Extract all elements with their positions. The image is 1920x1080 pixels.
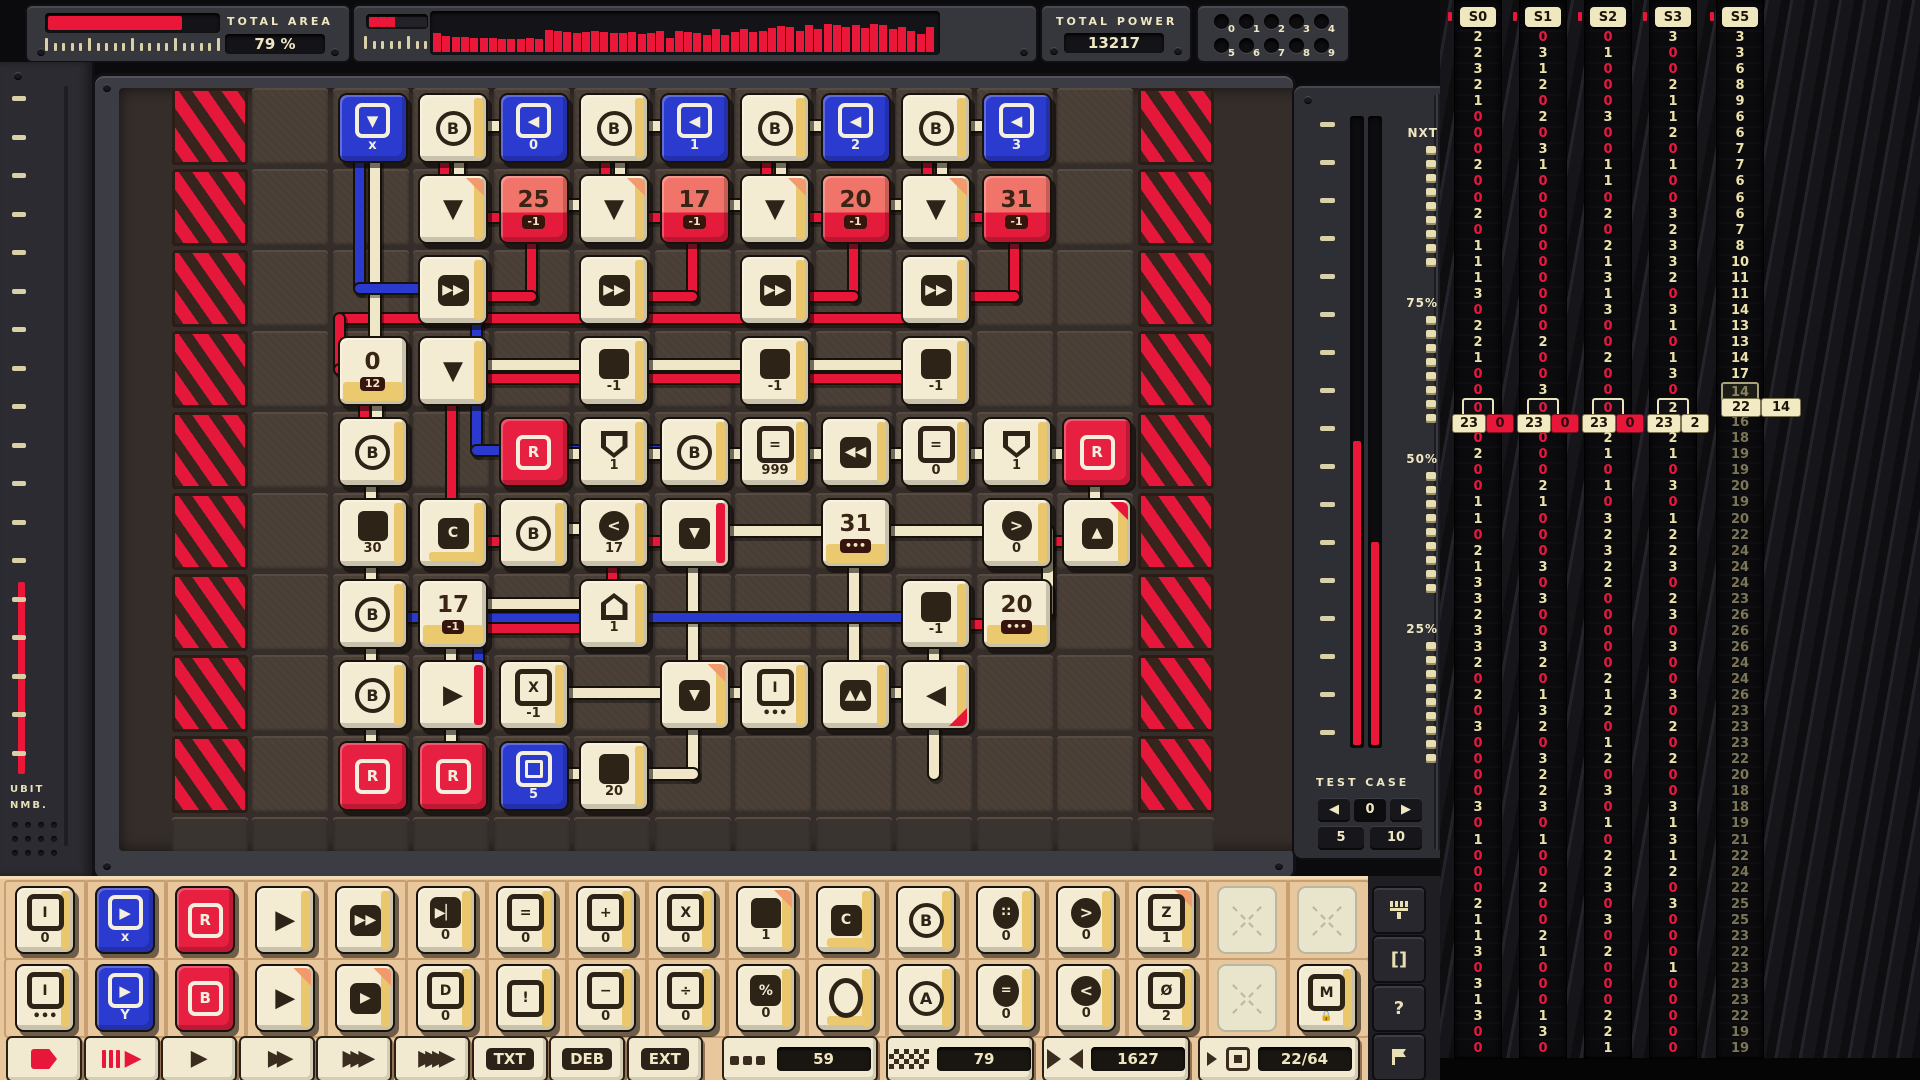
board-cell[interactable] bbox=[252, 574, 328, 651]
histogram-bar bbox=[517, 39, 525, 52]
tile-count-display[interactable]: 59 bbox=[722, 1036, 878, 1080]
tile-x[interactable]: X0 bbox=[656, 886, 716, 954]
stream-value: 2 bbox=[1585, 351, 1631, 367]
stream-value: 2 bbox=[1650, 592, 1696, 608]
histogram-bar bbox=[777, 26, 785, 52]
tile-◀◀[interactable]: ◀◀ bbox=[821, 417, 891, 487]
tile-r[interactable]: R bbox=[418, 741, 488, 811]
palette-cell[interactable]: ▶ bbox=[326, 960, 406, 1036]
board-cell[interactable] bbox=[1057, 736, 1133, 813]
digit-hole[interactable] bbox=[1264, 38, 1279, 53]
palette-cell[interactable]: <0 bbox=[1047, 960, 1127, 1036]
stream-value: 2 bbox=[1455, 447, 1501, 463]
marker-square bbox=[1426, 556, 1436, 565]
stream-value: 2 bbox=[1650, 431, 1696, 447]
tile-▶[interactable]: ▶x bbox=[95, 886, 155, 954]
board-cell[interactable] bbox=[1057, 88, 1133, 165]
stream-value: 23 bbox=[1717, 961, 1763, 977]
hazard-cell bbox=[1138, 331, 1214, 408]
histogram-bar bbox=[703, 35, 711, 52]
slider-tick bbox=[1320, 502, 1335, 507]
stream-value: 23 bbox=[1717, 977, 1763, 993]
hourglass-icon bbox=[1047, 1049, 1083, 1069]
digit-label: 5 bbox=[1228, 48, 1235, 59]
tile-%[interactable]: %0 bbox=[736, 964, 796, 1032]
stream-value: 1 bbox=[1520, 945, 1566, 961]
stream-value: 0 bbox=[1455, 1041, 1501, 1057]
tile-r[interactable]: R bbox=[1062, 417, 1132, 487]
ext-button[interactable]: EXT bbox=[627, 1036, 703, 1080]
stream-value: 0 bbox=[1585, 142, 1631, 158]
board-cell[interactable] bbox=[735, 736, 811, 813]
palette-cell[interactable]: B bbox=[887, 882, 967, 958]
tile-wbox-tridown[interactable]: ▼x bbox=[338, 93, 408, 163]
stream-value: 0 bbox=[1650, 881, 1696, 897]
tile-▲[interactable]: ▲ bbox=[1062, 498, 1132, 568]
boxed-=-icon: = bbox=[918, 426, 955, 463]
dot-grid-dot bbox=[51, 836, 57, 842]
tile-÷[interactable]: ÷0 bbox=[656, 964, 716, 1032]
board-cell[interactable] bbox=[252, 493, 328, 570]
square-icon bbox=[751, 898, 781, 928]
tile-i[interactable]: I••• bbox=[15, 964, 75, 1032]
palette-cell[interactable]: Ø2 bbox=[1127, 960, 1207, 1036]
flag-button[interactable] bbox=[1372, 1033, 1426, 1080]
stream-value: 11 bbox=[1717, 271, 1763, 287]
tile-d[interactable]: D0 bbox=[416, 964, 476, 1032]
input-left-icon: ◀ bbox=[516, 103, 551, 138]
board-cell[interactable] bbox=[252, 88, 328, 165]
marker-square bbox=[1426, 216, 1436, 225]
palette-cell[interactable]: ▶ bbox=[246, 960, 326, 1036]
stream-value: 1 bbox=[1650, 351, 1696, 367]
tile-sq[interactable]: 20 bbox=[579, 741, 649, 811]
boxed-=-icon: = bbox=[507, 894, 544, 931]
stream-value: 24 bbox=[1717, 865, 1763, 881]
tile-c[interactable]: C bbox=[816, 886, 876, 954]
run-button[interactable]: ▶ bbox=[161, 1036, 237, 1080]
tile-b[interactable]: B bbox=[579, 93, 649, 163]
tile-▼[interactable]: ▼ bbox=[660, 498, 730, 568]
tile-x[interactable]: X-1 bbox=[499, 660, 569, 730]
marker-square bbox=[1426, 542, 1436, 551]
tile-=[interactable]: =0 bbox=[496, 886, 556, 954]
tile-=[interactable]: =999 bbox=[740, 417, 810, 487]
tile-sq[interactable]: -1 bbox=[901, 336, 971, 406]
txt-button[interactable]: TXT bbox=[472, 1036, 548, 1080]
tile-▶[interactable]: ▶ bbox=[335, 964, 395, 1032]
tile-r[interactable]: R bbox=[499, 417, 569, 487]
palette-cell[interactable] bbox=[1208, 960, 1288, 1036]
stream-value: 0 bbox=[1455, 431, 1501, 447]
palette-cell[interactable]: 1 bbox=[727, 882, 807, 958]
tile-tri-down[interactable]: ▼ bbox=[901, 174, 971, 244]
board-cell[interactable] bbox=[1057, 331, 1133, 408]
tile-![interactable]: ! bbox=[496, 964, 556, 1032]
hazard-cell bbox=[172, 331, 248, 408]
tile-label: 17 bbox=[605, 541, 623, 556]
tile-r[interactable]: R bbox=[175, 886, 235, 954]
stream-value: 0 bbox=[1650, 736, 1696, 752]
dot-grid-dot bbox=[25, 822, 31, 828]
digit-hole[interactable] bbox=[1264, 14, 1279, 29]
empty-slot[interactable] bbox=[1217, 886, 1277, 954]
tile-sq[interactable]: 30 bbox=[338, 498, 408, 568]
tile-label: -1 bbox=[768, 379, 782, 394]
stream-value: 3 bbox=[1585, 784, 1631, 800]
tile-sqsq[interactable]: 5 bbox=[499, 741, 569, 811]
stream-value: 0 bbox=[1585, 383, 1631, 399]
tile-▶▶[interactable]: ▶▶ bbox=[579, 255, 649, 325]
stream-value: 2 bbox=[1585, 672, 1631, 688]
stream-value: 9 bbox=[1717, 94, 1763, 110]
palette-cell[interactable]: ÷0 bbox=[647, 960, 727, 1036]
histogram-bar bbox=[433, 33, 441, 52]
stream-value: 3 bbox=[1455, 592, 1501, 608]
slider-tick bbox=[1320, 160, 1335, 165]
tile-17[interactable]: 17-1 bbox=[660, 174, 730, 244]
tile-25[interactable]: 25-1 bbox=[499, 174, 569, 244]
palette-cell[interactable]: +0 bbox=[567, 882, 647, 958]
tile-+[interactable]: +0 bbox=[576, 886, 636, 954]
stream-value: 1 bbox=[1650, 816, 1696, 832]
tile-b[interactable]: B bbox=[338, 579, 408, 649]
tile-b[interactable]: B bbox=[338, 660, 408, 730]
stream-value: 0 bbox=[1520, 447, 1566, 463]
marker-label-50: 50% bbox=[1406, 452, 1438, 466]
faster-button[interactable]: ▶▶▶ bbox=[316, 1036, 392, 1080]
io-streams-panel: S022321000200201113022100023002001102133… bbox=[1440, 0, 1920, 1080]
tile-tri-left[interactable]: ◀ bbox=[901, 660, 971, 730]
board-cell[interactable] bbox=[1057, 574, 1133, 651]
dot-grid-dot bbox=[12, 850, 18, 856]
tile-▲▲[interactable]: ▲▲ bbox=[821, 660, 891, 730]
palette-cell[interactable]: =0 bbox=[487, 882, 567, 958]
palette-cell[interactable]: =0 bbox=[967, 960, 1047, 1036]
tile-b[interactable]: B bbox=[175, 964, 235, 1032]
stream-value: 0 bbox=[1520, 463, 1566, 479]
test-case-prev-button[interactable]: ◀ bbox=[1318, 798, 1350, 820]
digit-hole[interactable] bbox=[1214, 38, 1229, 53]
stream-value: 0 bbox=[1650, 784, 1696, 800]
letter-B-icon: B bbox=[909, 903, 944, 938]
triangle-down-icon: ▼ bbox=[443, 194, 463, 224]
palette-cell[interactable]: X0 bbox=[647, 882, 727, 958]
stream-value: 1 bbox=[1455, 495, 1501, 511]
play-icon: ▶ bbox=[191, 1049, 208, 1069]
tile-∷[interactable]: ∷0 bbox=[976, 886, 1036, 954]
tile-tri-down[interactable]: ▼ bbox=[418, 336, 488, 406]
digit-hole[interactable] bbox=[1239, 38, 1254, 53]
board-cell[interactable] bbox=[252, 250, 328, 327]
stream-value: 3 bbox=[1455, 1009, 1501, 1025]
histogram-bar bbox=[833, 25, 841, 52]
tile-badge: ••• bbox=[840, 539, 871, 553]
stream-value: 3 bbox=[1455, 977, 1501, 993]
tile-17[interactable]: 17-1 bbox=[418, 579, 488, 649]
hazard-cell bbox=[172, 250, 248, 327]
palette-cell[interactable] bbox=[1208, 882, 1288, 958]
slider-tick bbox=[1320, 464, 1335, 469]
tile-i[interactable]: I••• bbox=[740, 660, 810, 730]
test-case-preset-5[interactable]: 5 bbox=[1318, 826, 1364, 848]
left-tick bbox=[12, 404, 26, 409]
palette-cell[interactable]: A bbox=[887, 960, 967, 1036]
stream-value: 0 bbox=[1650, 704, 1696, 720]
tile-sq[interactable]: -1 bbox=[740, 336, 810, 406]
digit-hole[interactable] bbox=[1289, 14, 1304, 29]
stream-value: 2 bbox=[1650, 78, 1696, 94]
tile-−[interactable]: −0 bbox=[576, 964, 636, 1032]
deb-button[interactable]: DEB bbox=[549, 1036, 625, 1080]
stream-value: 3 bbox=[1520, 752, 1566, 768]
tile-▶▶[interactable]: ▶▶ bbox=[335, 886, 395, 954]
digit-hole[interactable] bbox=[1214, 14, 1229, 29]
tile-b[interactable]: B bbox=[901, 93, 971, 163]
brush-button[interactable] bbox=[1372, 886, 1426, 934]
tile-tri-right[interactable]: ▶ bbox=[255, 886, 315, 954]
stop-button[interactable] bbox=[6, 1036, 82, 1080]
tile-shield[interactable]: 1 bbox=[579, 417, 649, 487]
stream-value: 2 bbox=[1455, 46, 1501, 62]
tile-ø[interactable]: Ø2 bbox=[1136, 964, 1196, 1032]
digit-hole[interactable] bbox=[1289, 38, 1304, 53]
tile-31[interactable]: 31••• bbox=[821, 498, 891, 568]
tile-▶[interactable]: ▶Y bbox=[95, 964, 155, 1032]
tile-=[interactable]: =0 bbox=[901, 417, 971, 487]
tile-r[interactable]: R bbox=[338, 741, 408, 811]
tile-b[interactable]: B bbox=[418, 93, 488, 163]
board-cell[interactable] bbox=[977, 655, 1053, 732]
marker-square bbox=[1426, 330, 1436, 339]
board-cell[interactable] bbox=[1057, 655, 1133, 732]
slider-tick bbox=[1320, 654, 1335, 659]
tile-▼[interactable]: ▼ bbox=[660, 660, 730, 730]
tile-z[interactable]: Z1 bbox=[1136, 886, 1196, 954]
palette-cell[interactable]: B bbox=[166, 960, 246, 1036]
test-case-preset-10[interactable]: 10 bbox=[1370, 826, 1422, 848]
tile-label: 5 bbox=[529, 787, 538, 802]
digit-hole[interactable] bbox=[1314, 38, 1329, 53]
marker-square bbox=[1426, 656, 1436, 665]
test-case-label: TEST CASE bbox=[1316, 776, 1409, 789]
tile-=[interactable]: =0 bbox=[976, 964, 1036, 1032]
histogram-bar bbox=[666, 38, 674, 52]
tile-b[interactable]: B bbox=[338, 417, 408, 487]
area-count-display[interactable]: 79 bbox=[886, 1036, 1034, 1080]
palette-cell[interactable]: R bbox=[166, 882, 246, 958]
board-edge-cell bbox=[252, 817, 328, 851]
stream-value: 0 bbox=[1650, 46, 1696, 62]
tile-wbox-trileft[interactable]: ◀0 bbox=[499, 93, 569, 163]
palette-cell[interactable]: ▶ bbox=[246, 882, 326, 958]
frame-count-display[interactable]: 22/64 bbox=[1198, 1036, 1360, 1080]
tile-31[interactable]: 31-1 bbox=[982, 174, 1052, 244]
fast-forward-icon: ▶▶ bbox=[268, 1049, 286, 1069]
help-button[interactable]: ? bbox=[1372, 984, 1426, 1032]
side-buttons: []? bbox=[1368, 876, 1440, 1080]
step-button[interactable]: ▶ bbox=[84, 1036, 160, 1080]
tile-tri-down[interactable]: ▼ bbox=[740, 174, 810, 244]
cycle-count-display[interactable]: 1627 bbox=[1042, 1036, 1190, 1080]
palette-cell[interactable]: ▶x bbox=[86, 882, 166, 958]
empty-slot[interactable] bbox=[1217, 964, 1277, 1032]
tile-20[interactable]: 20-1 bbox=[821, 174, 891, 244]
slider-tick bbox=[1320, 616, 1335, 621]
palette-cell[interactable] bbox=[1288, 882, 1368, 958]
stream-value: 3 bbox=[1650, 30, 1696, 46]
tile-tri-right[interactable]: ▶ bbox=[418, 660, 488, 730]
board-cell[interactable] bbox=[1057, 250, 1133, 327]
tile-home[interactable]: 1 bbox=[579, 579, 649, 649]
ruler-tick bbox=[424, 41, 427, 49]
stream-value: 3 bbox=[1585, 544, 1631, 560]
dark-boxed-icon: ◀◀ bbox=[840, 437, 871, 468]
palette-cell[interactable]: Z1 bbox=[1127, 882, 1207, 958]
tile-m[interactable]: M🔒 bbox=[1297, 964, 1357, 1032]
tile-i[interactable]: I0 bbox=[15, 886, 75, 954]
board-cell[interactable] bbox=[977, 736, 1053, 813]
tile-wbox-trileft[interactable]: ◀2 bbox=[821, 93, 891, 163]
board-cell[interactable] bbox=[252, 736, 328, 813]
tile-tri-down[interactable]: ▼ bbox=[579, 174, 649, 244]
tile-b[interactable]: B bbox=[660, 417, 730, 487]
ruler-tick bbox=[200, 43, 203, 51]
tile-b[interactable]: B bbox=[499, 498, 569, 568]
triangle-right-icon: ▶ bbox=[443, 680, 463, 710]
boxed-=-icon: = bbox=[757, 426, 794, 463]
marker-square bbox=[1426, 244, 1436, 253]
palette-cell[interactable] bbox=[807, 960, 887, 1036]
board-cell[interactable] bbox=[252, 169, 328, 246]
stream-value: 0 bbox=[1455, 528, 1501, 544]
stream-value: 0 bbox=[1650, 142, 1696, 158]
board-cell[interactable] bbox=[816, 736, 892, 813]
stream-value: 0 bbox=[1520, 624, 1566, 640]
tile-▶▶[interactable]: ▶▶ bbox=[740, 255, 810, 325]
tile-tri-down[interactable]: ▼ bbox=[418, 174, 488, 244]
palette-cell[interactable]: I0 bbox=[6, 882, 86, 958]
stream-value: 0 bbox=[1585, 78, 1631, 94]
histogram-bar bbox=[870, 24, 878, 52]
palette-cell[interactable]: −0 bbox=[567, 960, 647, 1036]
tile-▶▶[interactable]: ▶▶ bbox=[901, 255, 971, 325]
palette-cell[interactable]: %0 bbox=[727, 960, 807, 1036]
palette-cell[interactable]: ! bbox=[487, 960, 567, 1036]
palette-cell[interactable]: >0 bbox=[1047, 882, 1127, 958]
histogram-bar bbox=[861, 28, 869, 52]
histogram-bar bbox=[805, 25, 813, 52]
stream-value: 24 bbox=[1717, 672, 1763, 688]
test-case-next-button[interactable]: ▶ bbox=[1390, 798, 1422, 820]
fast-button[interactable]: ▶▶ bbox=[239, 1036, 315, 1080]
tile-wbox-trileft[interactable]: ◀1 bbox=[660, 93, 730, 163]
tile-▶▏[interactable]: ▶▏0 bbox=[416, 886, 476, 954]
histogram-bar bbox=[489, 38, 497, 52]
empty-slot[interactable] bbox=[1297, 886, 1357, 954]
stream-value: 1 bbox=[1520, 1009, 1566, 1025]
tile-20[interactable]: 20••• bbox=[982, 579, 1052, 649]
board-cell[interactable] bbox=[1057, 169, 1133, 246]
board-cell[interactable] bbox=[977, 331, 1053, 408]
stream-value: 0 bbox=[1520, 913, 1566, 929]
palette-cell[interactable]: ▶▏0 bbox=[407, 882, 487, 958]
stream-value: 1 bbox=[1585, 287, 1631, 303]
tile-<[interactable]: <0 bbox=[1056, 964, 1116, 1032]
hazard-cell bbox=[1138, 574, 1214, 651]
board-cell[interactable] bbox=[252, 412, 328, 489]
tile-▶▶[interactable]: ▶▶ bbox=[418, 255, 488, 325]
tile->[interactable]: >0 bbox=[982, 498, 1052, 568]
tile-shield[interactable]: 1 bbox=[982, 417, 1052, 487]
board-cell[interactable] bbox=[252, 655, 328, 732]
stream-value: 23 bbox=[1717, 720, 1763, 736]
digit-hole[interactable] bbox=[1239, 14, 1254, 29]
histogram-bar bbox=[759, 31, 767, 52]
palette-cell[interactable]: ▶Y bbox=[86, 960, 166, 1036]
total-area-label: TOTAL AREA bbox=[227, 15, 333, 28]
tile-0[interactable]: 012 bbox=[338, 336, 408, 406]
stream-value: 1 bbox=[1455, 560, 1501, 576]
stream-value: 0 bbox=[1520, 544, 1566, 560]
palette-cell[interactable]: ∷0 bbox=[967, 882, 1047, 958]
fastest-button[interactable]: ▶▶▶▶ bbox=[394, 1036, 470, 1080]
palette-cell[interactable]: ▶▶ bbox=[326, 882, 406, 958]
marker-square bbox=[1426, 344, 1436, 353]
tile-oval[interactable] bbox=[816, 964, 876, 1032]
tile-sq[interactable]: 1 bbox=[736, 886, 796, 954]
stream-value: 3 bbox=[1585, 303, 1631, 319]
tile-a[interactable]: A bbox=[896, 964, 956, 1032]
stream-value: 1 bbox=[1455, 271, 1501, 287]
tile-wbox-trileft[interactable]: ◀3 bbox=[982, 93, 1052, 163]
red-wire bbox=[447, 374, 939, 383]
tile-label: 0 bbox=[521, 931, 530, 946]
stream-value: 1 bbox=[1520, 158, 1566, 174]
tile-sq[interactable]: -1 bbox=[579, 336, 649, 406]
tile->[interactable]: >0 bbox=[1056, 886, 1116, 954]
palette-cell[interactable]: I••• bbox=[6, 960, 86, 1036]
tile-<[interactable]: <17 bbox=[579, 498, 649, 568]
stream-value: 3 bbox=[1650, 367, 1696, 383]
tile-sq[interactable]: -1 bbox=[901, 579, 971, 649]
board-cell[interactable] bbox=[252, 331, 328, 408]
tile-tri-right[interactable]: ▶ bbox=[255, 964, 315, 1032]
stream-value: 0 bbox=[1585, 592, 1631, 608]
digit-label: 6 bbox=[1253, 48, 1260, 59]
ubit-label-line2: NMB. bbox=[10, 800, 48, 811]
stream-value: 6 bbox=[1717, 110, 1763, 126]
palette-cell[interactable]: C bbox=[807, 882, 887, 958]
digit-hole[interactable] bbox=[1314, 14, 1329, 29]
tile-b[interactable]: B bbox=[740, 93, 810, 163]
left-tick bbox=[12, 135, 26, 140]
tile-c[interactable]: C bbox=[418, 498, 488, 568]
ruler-tick bbox=[71, 43, 74, 51]
brackets-button[interactable]: [] bbox=[1372, 935, 1426, 983]
tile-b[interactable]: B bbox=[896, 886, 956, 954]
marker-square bbox=[1426, 472, 1436, 481]
palette-cell[interactable]: M🔒 bbox=[1288, 960, 1368, 1036]
stream-value: 11 bbox=[1717, 287, 1763, 303]
histogram-bar bbox=[907, 31, 915, 52]
letter-B-icon: B bbox=[758, 111, 793, 146]
stream-value: 0 bbox=[1650, 287, 1696, 303]
palette-cell[interactable]: D0 bbox=[407, 960, 487, 1036]
left-tick bbox=[12, 674, 26, 679]
ruler-tick bbox=[97, 43, 100, 51]
stream-value: 0 bbox=[1520, 351, 1566, 367]
